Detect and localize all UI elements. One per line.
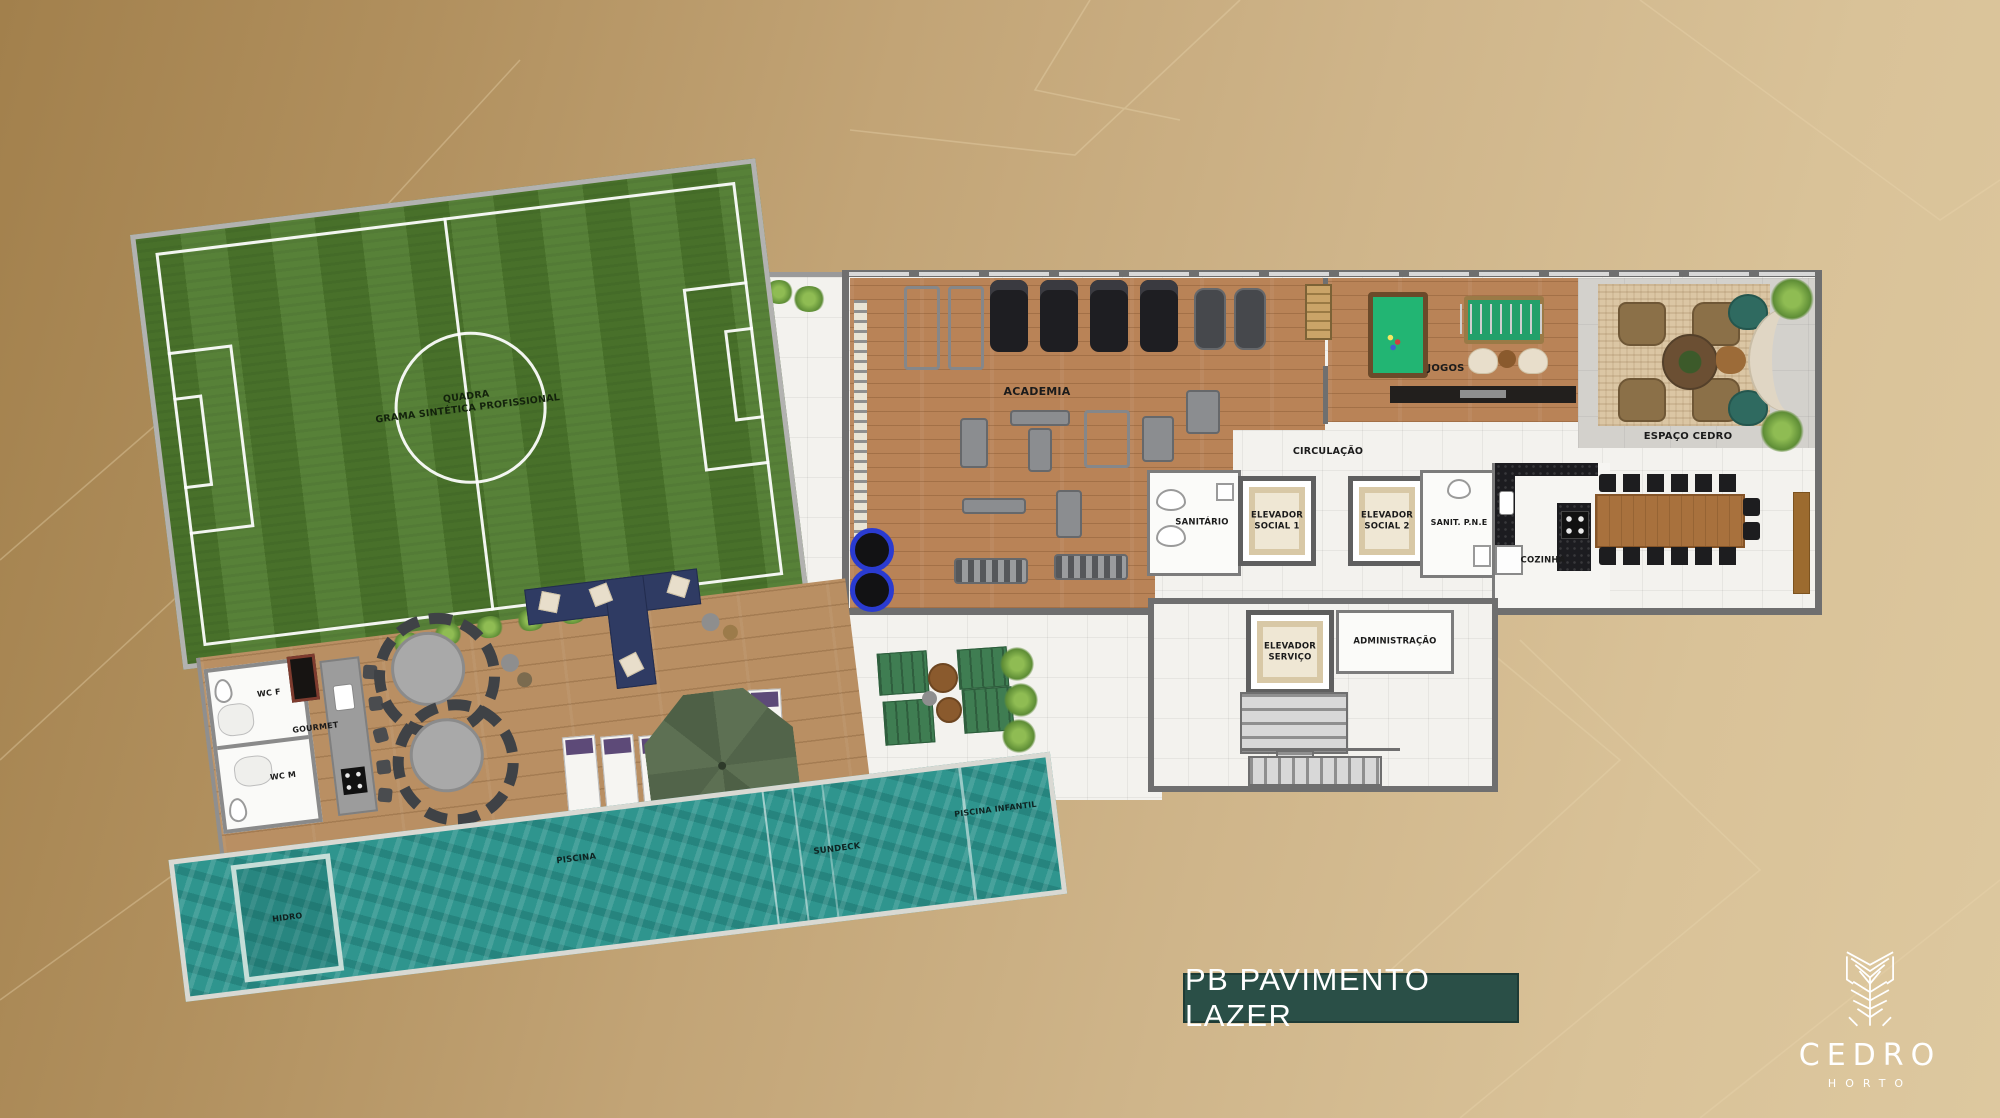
sink bbox=[1216, 483, 1234, 501]
cooktop bbox=[1561, 511, 1589, 539]
island-stool bbox=[376, 759, 392, 775]
tv-sideboard bbox=[1390, 386, 1576, 403]
plant-icon bbox=[1760, 410, 1804, 452]
weight-station bbox=[1186, 390, 1220, 434]
pool-divider bbox=[958, 768, 977, 900]
sideboard bbox=[1793, 492, 1810, 594]
dining-chair bbox=[1743, 522, 1760, 540]
piscina-label: PISCINA bbox=[556, 852, 597, 867]
elevador-social-2: ELEVADORSOCIAL 2 bbox=[1348, 476, 1426, 566]
dining-chair-row bbox=[1599, 474, 1739, 492]
elevador-social-1: ELEVADORSOCIAL 1 bbox=[1238, 476, 1316, 566]
dining-chair bbox=[1743, 498, 1760, 516]
brand-name: CEDRO bbox=[1790, 1038, 1950, 1073]
cozinha-label: COZINHA bbox=[1521, 556, 1566, 567]
island-stool bbox=[378, 787, 393, 802]
curved-sofa bbox=[1750, 308, 1830, 412]
lounge-armchair bbox=[1518, 348, 1548, 374]
dining-chair-row bbox=[1599, 547, 1739, 565]
foosball-rods bbox=[1460, 304, 1546, 334]
plan-title-bar: PB PAVIMENTO LAZER bbox=[1183, 973, 1519, 1023]
wood-side-table bbox=[1716, 346, 1746, 374]
toilet bbox=[1447, 479, 1471, 499]
pool-table bbox=[1368, 292, 1428, 378]
espaco-cedro-label: ESPAÇO CEDRO bbox=[1644, 431, 1733, 444]
sofa-cushion bbox=[538, 591, 560, 613]
left-wing: QUADRAGRAMA SINTÉTICA PROFISSIONAL WC F … bbox=[130, 112, 1229, 1019]
staircase bbox=[1240, 692, 1348, 754]
elliptical-trainer bbox=[1234, 288, 1266, 350]
circulacao-label: CIRCULAÇÃO bbox=[1293, 446, 1363, 458]
elevador-servico-label: ELEVADORSERVIÇO bbox=[1264, 641, 1316, 662]
plan-title-text: PB PAVIMENTO LAZER bbox=[1185, 962, 1517, 1034]
toilet bbox=[228, 797, 249, 823]
elevador-social-1-label: ELEVADORSOCIAL 1 bbox=[1251, 510, 1303, 531]
kitchen-sink bbox=[1499, 491, 1514, 515]
wc-m-label: WC M bbox=[269, 770, 296, 783]
brand-logo: CEDRO HORTO bbox=[1790, 948, 1950, 1108]
sanit-pne-room: SANIT. P.N.E bbox=[1420, 470, 1498, 578]
foosball-table bbox=[1464, 296, 1544, 344]
elevador-social-2-label: ELEVADORSOCIAL 2 bbox=[1361, 510, 1413, 531]
cue-rack bbox=[1305, 284, 1332, 340]
island-sink bbox=[332, 683, 355, 711]
fridge bbox=[1495, 545, 1523, 575]
plant-icon bbox=[1770, 278, 1814, 320]
administracao-label: ADMINISTRAÇÃO bbox=[1353, 637, 1436, 648]
elliptical-trainer bbox=[1194, 288, 1226, 350]
grab-bar bbox=[1473, 545, 1491, 567]
armchair bbox=[1618, 302, 1666, 346]
vanity-counter bbox=[233, 754, 274, 788]
round-side-table bbox=[1498, 350, 1516, 368]
umbrella-pole bbox=[718, 761, 727, 770]
piscina-infantil-label: PISCINA INFANTIL bbox=[954, 800, 1038, 820]
armchair bbox=[1618, 378, 1666, 422]
cozinha-area: COZINHA bbox=[1492, 463, 1610, 608]
dining-table bbox=[1595, 494, 1745, 548]
hidro-label: HIDRO bbox=[272, 911, 303, 925]
billiard-balls bbox=[1385, 331, 1403, 353]
tv-screen bbox=[1460, 390, 1506, 398]
wc-f-label: WC F bbox=[257, 687, 282, 700]
center-planter-table bbox=[1662, 334, 1718, 390]
jogos-label: JOGOS bbox=[1427, 363, 1464, 376]
toilet bbox=[213, 678, 234, 704]
lounge-armchair bbox=[1468, 348, 1498, 374]
cedro-leaf-emblem-icon bbox=[1837, 948, 1903, 1032]
staircase-lower bbox=[1248, 756, 1382, 786]
brand-subtitle: HORTO bbox=[1790, 1077, 1950, 1090]
red-cabinet bbox=[287, 654, 320, 703]
floor-plan-page: ACADEMIA JOGOS ESPAÇO C bbox=[0, 0, 2000, 1118]
island-cooktop bbox=[341, 766, 368, 795]
wc-divider-wall bbox=[217, 735, 309, 750]
sanit-pne-label: SANIT. P.N.E bbox=[1431, 518, 1488, 528]
kitchen-counter bbox=[1495, 463, 1598, 476]
hidro-zone: HIDRO bbox=[231, 853, 345, 982]
stair-rail bbox=[1240, 748, 1400, 751]
sundeck-step bbox=[791, 788, 809, 920]
elevador-servico: ELEVADORSERVIÇO bbox=[1246, 610, 1334, 694]
administracao-room: ADMINISTRAÇÃO bbox=[1336, 610, 1454, 674]
sundeck-label: SUNDECK bbox=[813, 841, 861, 857]
sundeck-step bbox=[762, 792, 780, 924]
vanity-counter bbox=[216, 702, 256, 738]
soccer-field: QUADRAGRAMA SINTÉTICA PROFISSIONAL bbox=[130, 158, 809, 670]
